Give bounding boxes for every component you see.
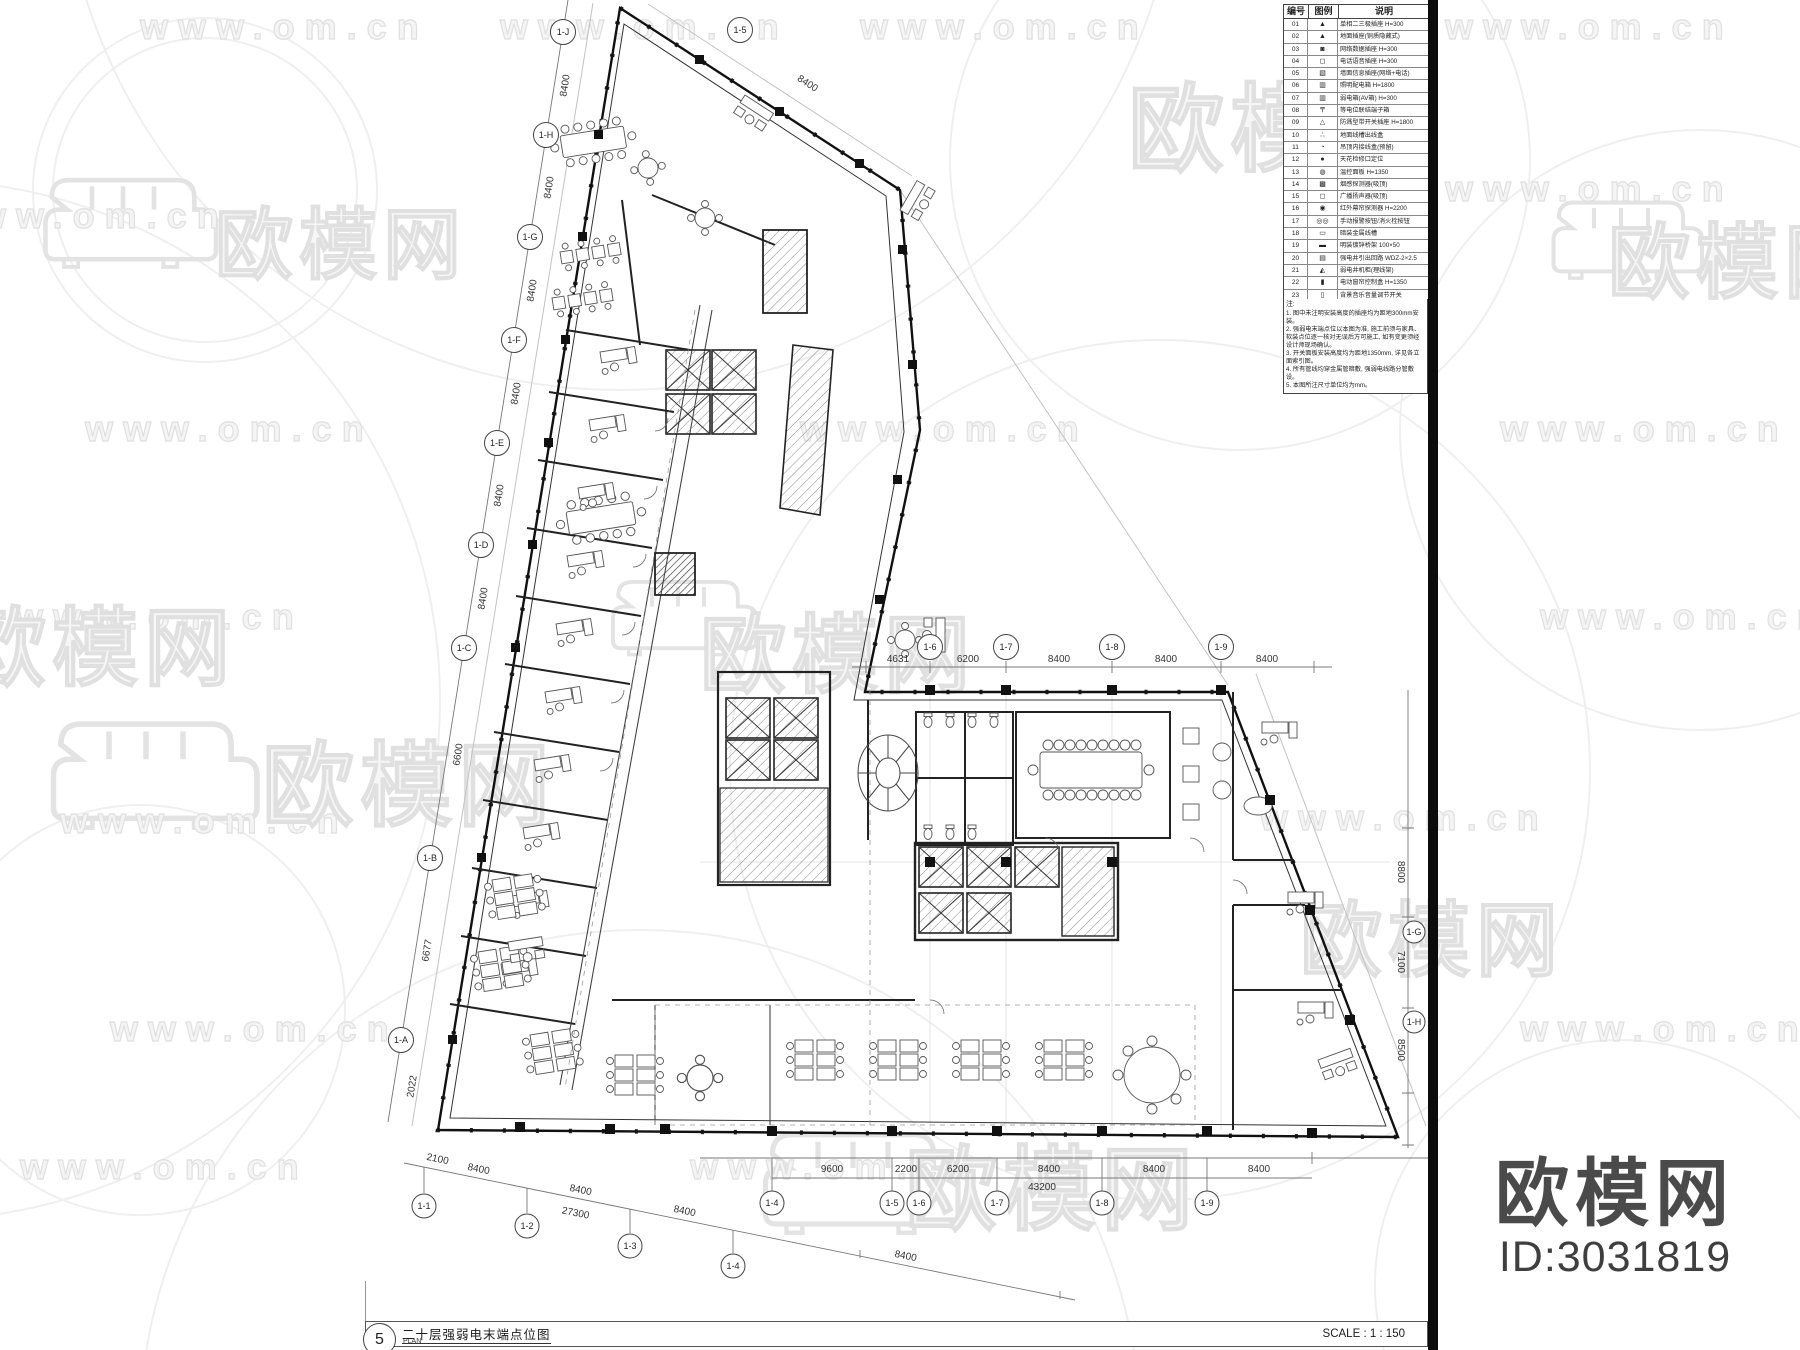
legend-row-no: 19	[1284, 240, 1308, 251]
legend-row-no: 16	[1284, 203, 1308, 214]
dim-label: 8400	[1143, 1164, 1166, 1175]
legend-rows: 01 ▲ 单相二三极插座 H=300 02 ▲ 地面插座(铜质隐藏式) 03 ◙…	[1284, 19, 1429, 325]
titlebar-tick	[365, 1281, 366, 1321]
grid-bubble: 1-H	[1407, 1017, 1422, 1027]
elevator-core-upper	[666, 345, 833, 515]
legend-row-no: 14	[1284, 179, 1308, 190]
legend-row: 22 ▮ 电动窗帘控制盒 H=1350	[1284, 277, 1429, 289]
legend-row: 07 ▥ 弱电箱(AV箱) H=300	[1284, 93, 1429, 105]
dim-label: 8400	[542, 175, 556, 199]
legend-row-icon: ∴	[1308, 130, 1338, 141]
legend-row-desc: 明装镀锌桥架 100×50	[1338, 240, 1429, 251]
grid-bubble: 1-4	[726, 1261, 739, 1271]
legend-row-icon: ◔	[1308, 142, 1338, 153]
dim-label: 8400	[467, 1162, 491, 1177]
legend-row-no: 02	[1284, 31, 1308, 42]
legend-row-icon: ▲	[1308, 19, 1338, 30]
legend-row-icon: 〒	[1308, 105, 1338, 116]
legend-row-desc: 温控面板 H=1350	[1338, 167, 1429, 178]
note-line: 5. 本图所注尺寸单位均为mm。	[1286, 382, 1425, 390]
dim-top: 1-5 8400	[728, 18, 821, 95]
legend-row-no: 01	[1284, 19, 1308, 30]
legend-row-desc: 暗装金属线槽	[1338, 228, 1429, 239]
grid-bubble: 1-7	[990, 1198, 1003, 1208]
legend-row-desc: 单相二三极插座 H=300	[1338, 19, 1429, 30]
legend-row-icon: ●	[1308, 154, 1338, 165]
legend-row-icon: ◭	[1308, 265, 1338, 276]
note-line: 3. 开关面板安装高度均为距地1350mm, 详见各立面索引图。	[1286, 350, 1425, 366]
legend-row-icon: ▲	[1308, 31, 1338, 42]
legend-row-no: 20	[1284, 253, 1308, 264]
legend-row-no: 15	[1284, 191, 1308, 202]
dim-label: 8400	[673, 1204, 697, 1219]
grid-bubble: 1-9	[1200, 1198, 1213, 1208]
legend-row-no: 22	[1284, 277, 1308, 288]
dim-bottom: 1-4 1-5 1-6 1-7 1-8 1-9 9600 2200 6200 8…	[700, 1152, 1430, 1215]
legend-row: 16 ◉ 红外幕帘探测器 H=2200	[1284, 203, 1429, 215]
legend-row-desc: 广播扬声器(吸顶)	[1338, 191, 1429, 202]
legend-row-no: 17	[1284, 216, 1308, 227]
notes-title: 注:	[1286, 301, 1425, 310]
legend-row: 04 ◻ 电话语音插座 H=300	[1284, 56, 1429, 68]
dim-label: 8400	[509, 381, 523, 405]
grid-bubble: 1-6	[912, 1198, 925, 1208]
legend-row-icon: ▧	[1308, 68, 1338, 79]
legend-row-icon: ▩	[1308, 179, 1338, 190]
legend-table: 编号 图例 说明 01 ▲ 单相二三极插座 H=300 02 ▲ 地面插座(铜质…	[1283, 4, 1430, 326]
legend-row: 13 ◍ 温控面板 H=1350	[1284, 167, 1429, 179]
legend-row-no: 21	[1284, 265, 1308, 276]
dim-label: 8400	[525, 278, 539, 302]
meeting-room	[1028, 728, 1272, 820]
dim-right: 1-G 1-H 8800 7100 8500	[1395, 690, 1425, 1148]
notes-list: 1. 图中未注明安装高度的插座均为距地300mm安装。2. 强弱电末端点位以本图…	[1286, 310, 1425, 391]
legend-row-desc: 手动报警按钮/消火栓按钮	[1338, 216, 1429, 227]
legend-row-icon: ◎◎	[1308, 216, 1338, 227]
legend-row-icon: ◙	[1308, 44, 1338, 55]
legend-row: 18 ▭ 暗装金属线槽	[1284, 228, 1429, 240]
legend-row-no: 07	[1284, 93, 1308, 104]
legend-row-desc: 烟感探测器(吸顶)	[1338, 179, 1429, 190]
dim-label: 2022	[405, 1074, 419, 1098]
toilet-fixtures	[924, 713, 998, 840]
dim-total: 27300	[561, 1205, 591, 1221]
grid-bubble: 1-3	[623, 1241, 636, 1251]
legend-row-desc: 弱电箱(AV箱) H=300	[1338, 93, 1429, 104]
legend-row: 11 ◔ 吊顶内接线盒(预留)	[1284, 142, 1429, 154]
dim-mid: 1-6 1-7 1-8 1-9 4631 6200 8400 8400 8400	[852, 635, 1332, 674]
legend-row-desc: 等电位联结端子箱	[1338, 105, 1429, 116]
dim-diagonal: 1-1 1-2 1-3 1-4 2100 8400 8400 8400 8400…	[404, 1152, 1075, 1300]
site-badge: 欧模网 ID:3031819	[1495, 1155, 1735, 1282]
legend-row: 15 ◻ 广播扬声器(吸顶)	[1284, 191, 1429, 203]
legend-header-icon: 图例	[1308, 5, 1338, 18]
legend-row-no: 08	[1284, 105, 1308, 116]
dim-label: 4631	[887, 654, 910, 665]
legend-row-icon: ▭	[1308, 228, 1338, 239]
dim-label: 8400	[1256, 654, 1279, 665]
dim-label: 8400	[492, 483, 506, 507]
dim-label: 8400	[569, 1183, 593, 1198]
boundary-lines	[412, 3, 1426, 1126]
grid-bubble: 1-E	[490, 438, 504, 448]
dim-label: 2200	[895, 1164, 918, 1175]
grid-bubble: 1-1	[417, 1201, 430, 1211]
legend-row-desc: 地面插座(铜质隐藏式)	[1338, 31, 1429, 42]
dim-label: 9600	[821, 1164, 844, 1175]
grid-bubble: 1-5	[885, 1198, 898, 1208]
grid-bubble: 1-9	[1214, 642, 1227, 652]
site-brand: 欧模网	[1495, 1155, 1735, 1233]
site-id: ID:3031819	[1495, 1233, 1735, 1282]
legend-row-no: 12	[1284, 154, 1308, 165]
drawing-title: 二十层强弱电末端点位图	[402, 1324, 551, 1344]
grid-bubble: 1-5	[733, 25, 746, 35]
legend-row-no: 11	[1284, 142, 1308, 153]
legend-row-no: 18	[1284, 228, 1308, 239]
legend-row: 19 ▬ 明装镀锌桥架 100×50	[1284, 240, 1429, 252]
dim-total: 43200	[1028, 1182, 1056, 1193]
legend-row-icon: △	[1308, 117, 1338, 128]
legend-row: 08 〒 等电位联结端子箱	[1284, 105, 1429, 117]
grid-bubble: 1-6	[923, 642, 936, 652]
grid-bubble: 1-A	[394, 1035, 408, 1045]
drawing-number-bubble: 5	[363, 1323, 396, 1350]
grid-bubble: 1-7	[999, 642, 1012, 652]
circulation-dashes	[565, 310, 1195, 1130]
legend-row: 03 ◙ 网络数据插座 H=300	[1284, 44, 1429, 56]
legend-row-desc: 吊顶内接线盒(预留)	[1338, 142, 1429, 153]
drawing-scale: SCALE : 1 : 150	[1323, 1328, 1405, 1340]
legend-row-icon: ▮	[1308, 277, 1338, 288]
legend-row: 17 ◎◎ 手动报警按钮/消火栓按钮	[1284, 216, 1429, 228]
legend-row: 06 ▥ 照明配电箱 H=1800	[1284, 80, 1429, 92]
legend-row-no: 13	[1284, 167, 1308, 178]
legend-header-desc: 说明	[1338, 5, 1429, 18]
elevator-core-central	[718, 672, 830, 885]
titlebar: 5 二十层强弱电末端点位图 PLAN SCALE : 1 : 150	[365, 1321, 1428, 1347]
round-meeting-table	[1113, 1036, 1191, 1114]
legend-row-icon: ▬	[1308, 240, 1338, 251]
grid-bubble: 1-2	[520, 1221, 533, 1231]
legend-row: 09 △ 防溅型带开关插座 H=1800	[1284, 117, 1429, 129]
grid-bubble: 1-8	[1095, 1198, 1108, 1208]
legend-row: 01 ▲ 单相二三极插座 H=300	[1284, 19, 1429, 31]
dim-label: 7100	[1395, 951, 1406, 974]
legend-notes: 注: 1. 图中未注明安装高度的插座均为距地300mm安装。2. 强弱电末端点位…	[1283, 299, 1428, 394]
legend-row: 21 ◭ 弱电井机柜(理线架)	[1284, 265, 1429, 277]
dim-label: 6200	[957, 654, 980, 665]
dim-label: 8400	[1248, 1164, 1271, 1175]
legend-row: 14 ▩ 烟感探测器(吸顶)	[1284, 179, 1429, 191]
legend-row-desc: 网络数据插座 H=300	[1338, 44, 1429, 55]
legend-row-desc: 照明配电箱 H=1800	[1338, 80, 1429, 91]
dim-label: 6600	[451, 742, 465, 766]
grid-bubble: 1-H	[539, 130, 554, 140]
legend-header: 编号 图例 说明	[1284, 5, 1429, 19]
legend-row-no: 06	[1284, 80, 1308, 91]
furniture	[470, 95, 1358, 1114]
dim-label: 8400	[1048, 654, 1071, 665]
grid-bubble: 1-C	[457, 643, 472, 653]
dim-label: 8400	[476, 586, 490, 610]
legend-row-desc: 天花检修口定位	[1338, 154, 1429, 165]
legend-row-icon: ▥	[1308, 93, 1338, 104]
legend-row-desc: 强电井引出回路 WDZ-2×2.5	[1338, 253, 1429, 264]
legend-row-no: 09	[1284, 117, 1308, 128]
grid-bubble: 1-4	[765, 1198, 778, 1208]
note-line: 2. 强弱电末端点位以本图为准, 施工前须与家具、软装点位逐一核对无误后方可施工…	[1286, 326, 1425, 350]
floor-plan: 1-J 1-H 1-G 1-F 1-E 1-D 1-C 1-B 1-A 8400…	[0, 0, 1800, 1350]
legend-header-no: 编号	[1284, 5, 1308, 18]
legend-row: 05 ▧ 墙面信息插座(网络+电话)	[1284, 68, 1429, 80]
legend-row-icon: ▤	[1308, 253, 1338, 264]
grid-bubble: 1-G	[522, 232, 537, 242]
legend-row: 10 ∴ 地面线槽出线盒	[1284, 130, 1429, 142]
legend-row-no: 03	[1284, 44, 1308, 55]
legend-row-desc: 地面线槽出线盒	[1338, 130, 1429, 141]
grid-bubble: 1-B	[423, 853, 437, 863]
dim-label: 2100	[426, 1152, 450, 1167]
page-divider-bar	[1428, 0, 1438, 1350]
spiral-stair	[858, 735, 918, 811]
cad-sheet: www.om.cn www.om.cn www.om.cn www.om.cn …	[0, 0, 1800, 1350]
grid-bubble: 1-J	[557, 27, 570, 37]
legend-row-desc: 防溅型带开关插座 H=1800	[1338, 117, 1429, 128]
note-line: 4. 所有管线均穿金属管暗敷, 强弱电线路分管敷设。	[1286, 366, 1425, 382]
legend-row: 02 ▲ 地面插座(铜质隐藏式)	[1284, 31, 1429, 43]
legend-row-icon: ▥	[1308, 80, 1338, 91]
grid-bubble: 1-D	[474, 540, 489, 550]
legend-row-no: 04	[1284, 56, 1308, 67]
legend-row-desc: 电话语音插座 H=300	[1338, 56, 1429, 67]
dim-label: 8400	[558, 73, 572, 97]
legend-row-icon: ◻	[1308, 191, 1338, 202]
note-line: 1. 图中未注明安装高度的插座均为距地300mm安装。	[1286, 310, 1425, 326]
dim-label: 8400	[795, 73, 820, 95]
dim-label: 8400	[1155, 654, 1178, 665]
dim-label: 6677	[420, 938, 434, 962]
legend-row: 12 ● 天花检修口定位	[1284, 154, 1429, 166]
grid-bubble: 1-8	[1105, 642, 1118, 652]
legend-row: 20 ▤ 强电井引出回路 WDZ-2×2.5	[1284, 253, 1429, 265]
legend-row-desc: 电动窗帘控制盒 H=1350	[1338, 277, 1429, 288]
dim-label: 8400	[1038, 1164, 1061, 1175]
dim-label: 8500	[1395, 1039, 1406, 1062]
legend-row-icon: ◉	[1308, 203, 1338, 214]
grid-bubble: 1-G	[1406, 927, 1421, 937]
legend-row-desc: 墙面信息插座(网络+电话)	[1338, 68, 1429, 79]
dim-label: 6200	[947, 1164, 970, 1175]
elevator-core-lower	[915, 843, 1118, 940]
dim-label: 8800	[1395, 861, 1406, 884]
legend-row-no: 10	[1284, 130, 1308, 141]
legend-row-icon: ◻	[1308, 56, 1338, 67]
dim-label: 8400	[894, 1249, 918, 1264]
grid-bubble: 1-F	[507, 335, 521, 345]
legend-row-no: 05	[1284, 68, 1308, 79]
legend-row-icon: ◍	[1308, 167, 1338, 178]
legend-row-desc: 红外幕帘探测器 H=2200	[1338, 203, 1429, 214]
drawing-subtitle: PLAN	[403, 1338, 421, 1345]
legend-row-desc: 弱电井机柜(理线架)	[1338, 265, 1429, 276]
